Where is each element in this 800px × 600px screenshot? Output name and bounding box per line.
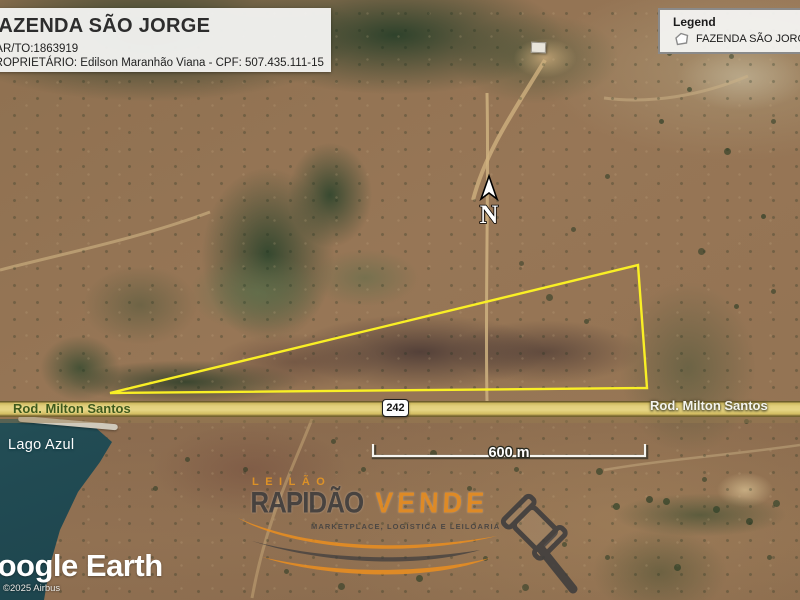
legend-item: FAZENDA SÃO JORGE bbox=[673, 32, 800, 46]
farm-building bbox=[531, 42, 546, 54]
tree-dots bbox=[0, 0, 3, 3]
highway-shoulder bbox=[0, 417, 800, 423]
terrain-texture bbox=[0, 0, 800, 600]
polygon-outline-icon bbox=[673, 32, 690, 46]
property-title: FAZENDA SÃO JORGE bbox=[0, 15, 321, 38]
property-owner-line: PROPRIETÁRIO: Edilson Maranhão Viana - C… bbox=[0, 56, 321, 70]
google-earth-logo: Google Earth bbox=[0, 548, 163, 584]
legend-box: Legend FAZENDA SÃO JORGE bbox=[658, 8, 800, 54]
route-shield-242: 242 bbox=[382, 399, 409, 417]
legend-item-label: FAZENDA SÃO JORGE bbox=[696, 33, 800, 45]
legend-title: Legend bbox=[673, 15, 800, 29]
imagery-copyright: ©2025 Airbus bbox=[3, 583, 60, 594]
map-export-screenshot: N 600 m Rod. Milton Santos Rod. Milton S… bbox=[0, 0, 800, 600]
property-title-box: FAZENDA SÃO JORGE CAR/TO:1863919 PROPRIE… bbox=[0, 8, 331, 72]
property-car-line: CAR/TO:1863919 bbox=[0, 42, 321, 56]
